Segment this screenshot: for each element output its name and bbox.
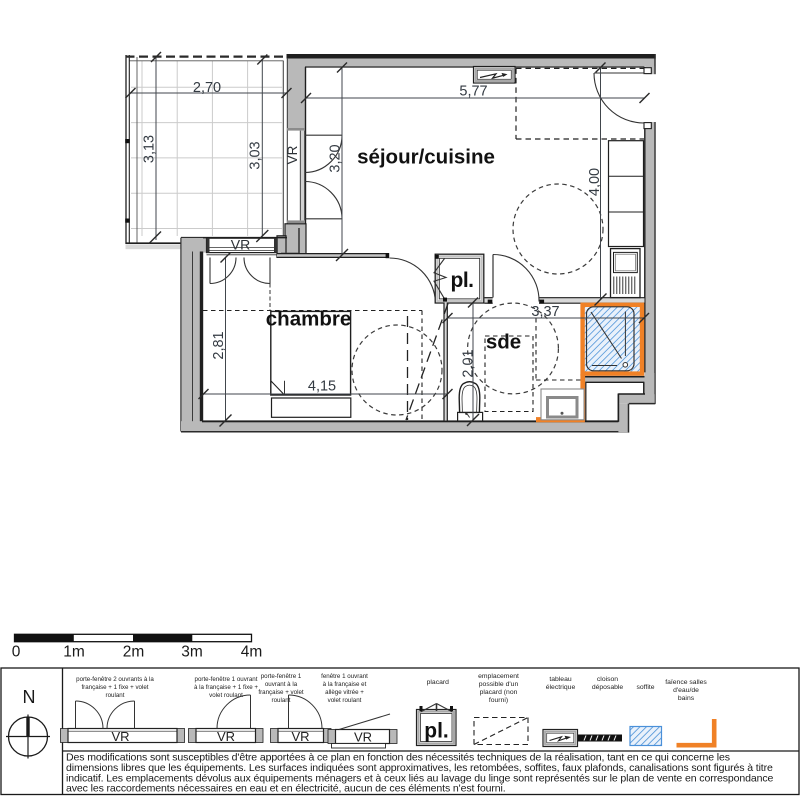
svg-text:porte-fenêtre 1 ouvrant: porte-fenêtre 1 ouvrant (195, 676, 258, 683)
svg-text:2m: 2m (123, 644, 145, 661)
svg-text:pl.: pl. (451, 269, 474, 292)
svg-text:française + 1 fixe + volet: française + 1 fixe + volet (81, 684, 148, 691)
svg-text:placard: placard (427, 679, 450, 686)
svg-text:3,37: 3,37 (531, 304, 559, 320)
svg-text:3,13: 3,13 (142, 135, 158, 163)
svg-text:pl.: pl. (424, 720, 449, 743)
svg-text:possible d'un: possible d'un (479, 681, 519, 688)
svg-text:cloison: cloison (597, 676, 618, 683)
svg-text:VR: VR (285, 145, 300, 164)
svg-text:avec les raccordements nécessa: avec les raccordements nécessaires en ea… (66, 782, 506, 794)
svg-text:bains: bains (678, 695, 695, 702)
svg-text:faïence salles: faïence salles (665, 679, 707, 686)
svg-text:française + volet: française + volet (258, 689, 304, 696)
svg-text:4m: 4m (241, 644, 263, 661)
svg-text:volet roulant: volet roulant (209, 692, 243, 699)
svg-text:0: 0 (12, 644, 21, 661)
svg-text:3,20: 3,20 (328, 144, 344, 172)
svg-text:porte-fenêtre 2 ouvrants à la: porte-fenêtre 2 ouvrants à la (76, 676, 154, 683)
svg-text:3,03: 3,03 (248, 141, 264, 169)
svg-text:allège vitrée +: allège vitrée + (325, 689, 364, 696)
svg-text:VR: VR (111, 729, 129, 744)
svg-text:2,70: 2,70 (193, 80, 221, 96)
svg-text:séjour/cuisine: séjour/cuisine (357, 146, 495, 169)
svg-text:soffite: soffite (636, 684, 654, 691)
svg-text:3m: 3m (181, 644, 203, 661)
svg-text:2,81: 2,81 (211, 331, 227, 359)
svg-text:N: N (23, 687, 36, 707)
svg-text:d'eau/de: d'eau/de (673, 687, 699, 694)
svg-text:placard (non: placard (non (480, 689, 518, 696)
svg-text:roulant: roulant (272, 697, 291, 704)
svg-text:VR: VR (291, 729, 309, 744)
svg-text:ouvrant à la: ouvrant à la (265, 681, 298, 688)
svg-text:VR: VR (231, 237, 250, 253)
svg-text:4,15: 4,15 (308, 379, 336, 395)
svg-text:à la française + 1 fixe +: à la française + 1 fixe + (194, 684, 258, 691)
svg-text:emplacement: emplacement (478, 673, 519, 680)
svg-text:roulant: roulant (106, 692, 125, 699)
svg-text:porte-fenêtre 1: porte-fenêtre 1 (261, 673, 302, 680)
svg-text:fourni): fourni) (489, 697, 508, 704)
svg-text:tableau: tableau (549, 676, 572, 683)
svg-text:à la française et: à la française et (323, 681, 367, 688)
svg-text:fenêtre 1 ouvrant: fenêtre 1 ouvrant (321, 673, 368, 680)
svg-text:1m: 1m (63, 644, 85, 661)
svg-text:VR: VR (217, 729, 235, 744)
svg-text:déposable: déposable (592, 684, 624, 691)
svg-text:volet roulant: volet roulant (328, 697, 362, 704)
svg-text:électrique: électrique (546, 684, 576, 691)
svg-text:5,77: 5,77 (459, 84, 487, 100)
svg-text:4,00: 4,00 (587, 168, 603, 196)
svg-text:VR: VR (354, 730, 372, 745)
svg-text:2,01: 2,01 (461, 349, 477, 377)
svg-text:sde: sde (486, 331, 521, 354)
svg-text:chambre: chambre (266, 308, 351, 331)
